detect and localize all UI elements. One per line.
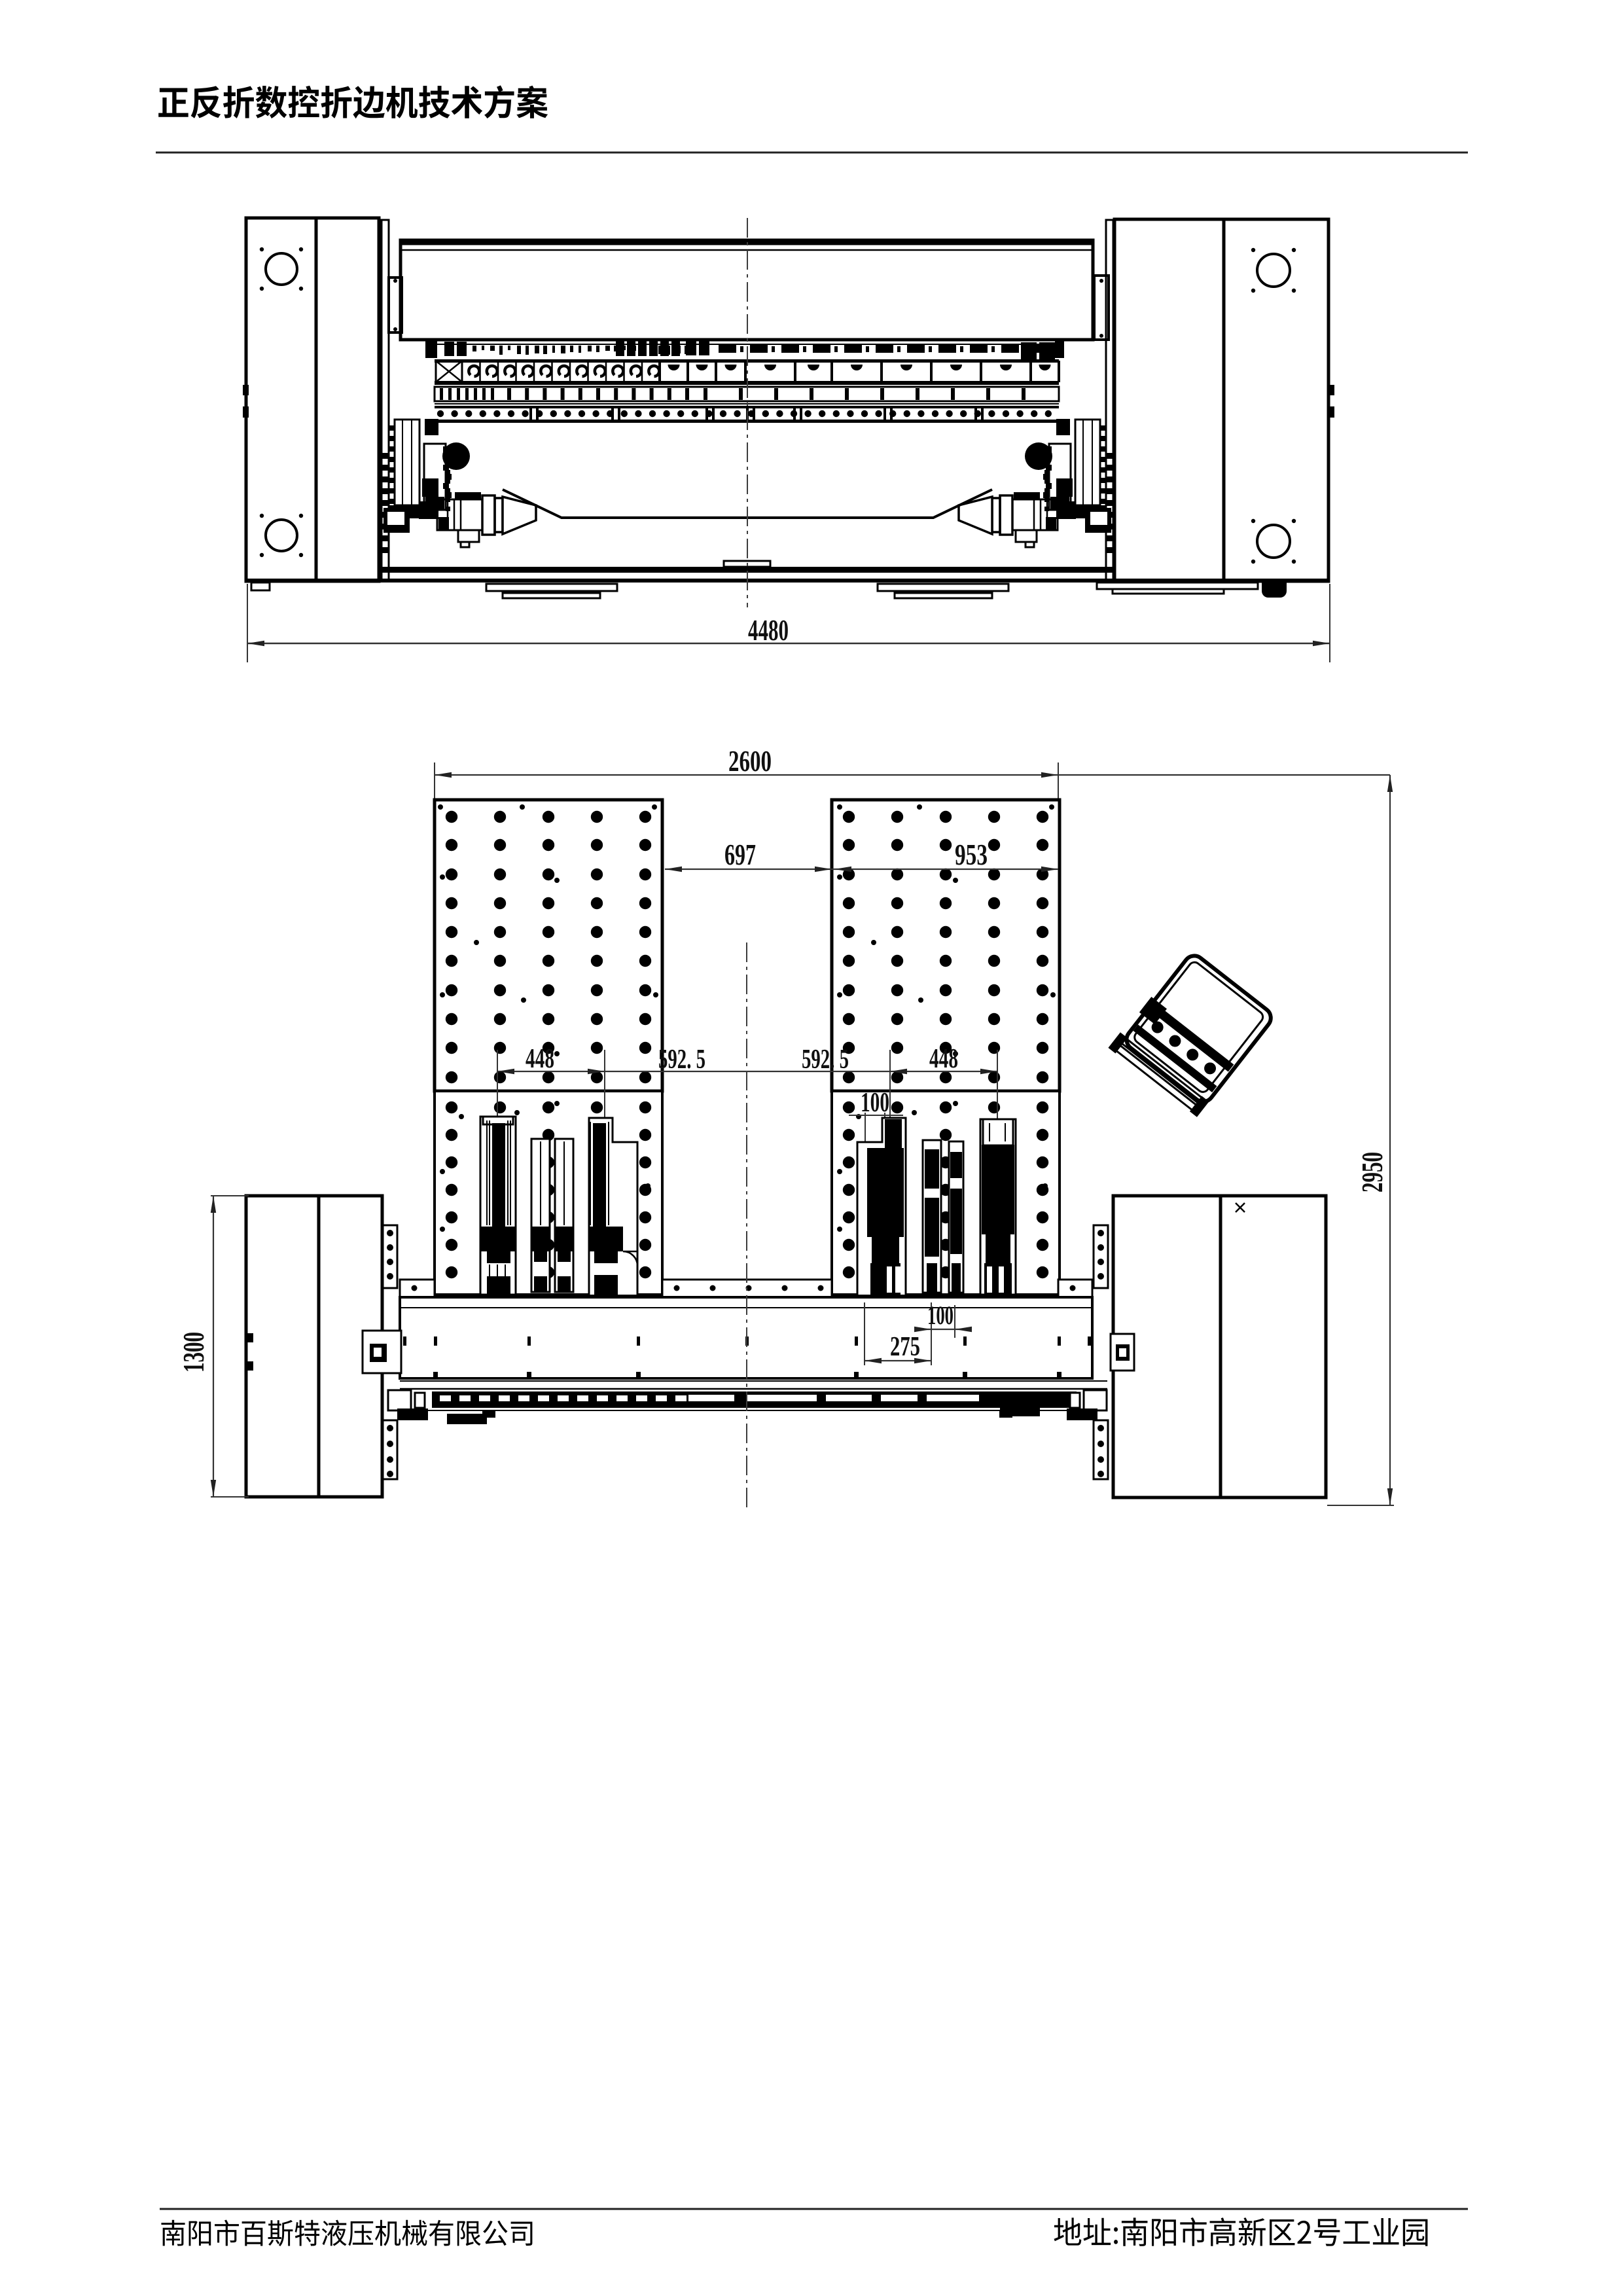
svg-text:448: 448 [929,1044,958,1074]
svg-text:592. 5: 592. 5 [658,1045,705,1075]
svg-text:697: 697 [724,838,756,871]
svg-text:448: 448 [526,1044,554,1074]
svg-text:4480: 4480 [748,613,789,647]
svg-text:2600: 2600 [728,744,772,778]
svg-text:100: 100 [927,1300,954,1330]
svg-text:953: 953 [955,838,988,871]
svg-text:1300: 1300 [177,1332,210,1372]
svg-text:275: 275 [890,1332,920,1362]
svg-text:592. 5: 592. 5 [802,1045,849,1075]
svg-text:2950: 2950 [1355,1152,1389,1193]
